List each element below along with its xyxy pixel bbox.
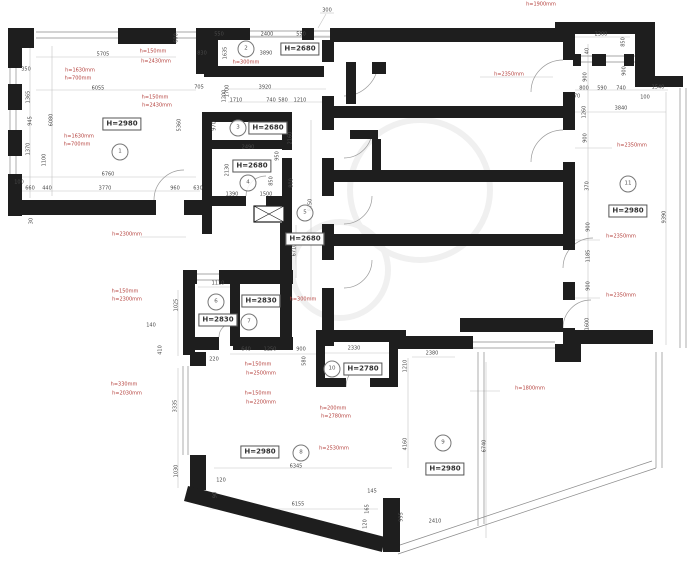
dimension-label: 830 (197, 51, 207, 57)
dimension-label: 550 (214, 32, 224, 38)
dimension-label: 2330 (348, 346, 361, 352)
room-number-badge: 10 (324, 361, 341, 378)
dimension-label: 2300 (595, 32, 608, 38)
dimension-label: 1185 (586, 250, 592, 263)
dimension-label: 165 (365, 504, 371, 514)
height-annotation: h=330mm (111, 382, 138, 388)
height-annotation: h=300mm (233, 60, 260, 66)
dimension-label: 900 (586, 281, 592, 291)
dimension-label: 1700 (225, 85, 231, 98)
dimension-label: 1390 (226, 192, 239, 198)
dimension-label: 660 (25, 186, 35, 192)
height-annotation: h=200mm (320, 406, 347, 412)
dimension-label: 370 (585, 181, 591, 191)
dimension-label: 900 (583, 133, 589, 143)
dimension-label: 900 (622, 66, 628, 76)
dimension-label: 1110 (212, 281, 225, 287)
dimension-label: 740 (266, 98, 276, 104)
height-annotation: h=1800mm (515, 386, 545, 392)
height-annotation: h=150mm (245, 362, 272, 368)
height-annotation: h=1630mm (64, 134, 94, 140)
dimension-label: 945 (28, 116, 34, 126)
room-height-label: H=2680 (280, 43, 319, 56)
dimension-label: 300 (322, 8, 332, 14)
dimension-label: 30 (29, 218, 35, 224)
height-annotation: h=1630mm (65, 68, 95, 74)
height-annotation: h=150mm (112, 289, 139, 295)
dimension-label: 590 (597, 86, 607, 92)
height-annotation: h=150mm (245, 391, 272, 397)
dimension-label: 2160 (288, 132, 294, 145)
room-height-label: H=2830 (198, 314, 237, 327)
dimension-label: 3770 (99, 186, 112, 192)
dimension-label: 1210 (294, 98, 307, 104)
dimension-label: 3920 (259, 85, 272, 91)
dimension-label: 705 (194, 85, 204, 91)
dimension-label: 995 (399, 512, 405, 522)
room-number-badge: 5 (297, 205, 314, 222)
room-number-badge: 7 (241, 314, 258, 331)
dimension-label: 120 (363, 519, 369, 529)
height-annotation: h=1900mm (526, 2, 556, 8)
floor-plan-canvas: 5705605535013659456080137011001006604406… (0, 0, 700, 571)
dimension-label: 1600 (585, 318, 591, 331)
dimension-label: 580 (278, 98, 288, 104)
room-number-badge: 8 (293, 445, 310, 462)
dimension-label: 1500 (260, 192, 273, 198)
dimension-label: 1370 (26, 143, 32, 156)
room-number-badge: 1 (112, 144, 129, 161)
dimension-label: 1635 (223, 47, 229, 60)
dimension-label: 1540 (652, 85, 665, 91)
height-annotation: h=150mm (140, 49, 167, 55)
dimension-label: 1710 (230, 98, 243, 104)
height-annotation: h=2350mm (606, 234, 636, 240)
height-annotation: h=2430mm (141, 59, 171, 65)
height-annotation: h=2300mm (112, 232, 142, 238)
dimension-label: 2490 (242, 145, 255, 151)
dimension-label: 550 (296, 32, 306, 38)
dimension-label: 6710 (292, 244, 298, 257)
room-number-badge: 9 (435, 435, 452, 452)
dimension-label: 3335 (173, 400, 179, 413)
room-height-label: H=2680 (248, 122, 287, 135)
dimension-label: 800 (289, 178, 295, 188)
dimension-label: 6760 (102, 172, 115, 178)
dimension-label: 970 (212, 121, 218, 131)
dimension-label: 740 (616, 86, 626, 92)
room-number-badge: 11 (620, 176, 637, 193)
dimension-label: 900 (583, 72, 589, 82)
dimension-label: 950 (275, 151, 281, 161)
dimension-label: 1250 (264, 347, 277, 353)
dimension-label: 960 (170, 186, 180, 192)
dimension-label: 1210 (403, 360, 409, 373)
dimension-label: 410 (158, 345, 164, 355)
height-annotation: h=2430mm (142, 103, 172, 109)
label-layer: 5705605535013659456080137011001006604406… (0, 0, 700, 571)
dimension-label: 5360 (177, 119, 183, 132)
height-annotation: h=2530mm (319, 446, 349, 452)
dimension-label: 800 (579, 86, 589, 92)
room-height-label: H=2980 (240, 446, 279, 459)
dimension-label: 90 (213, 492, 219, 498)
room-height-label: H=2980 (102, 118, 141, 131)
room-height-label: H=2980 (425, 463, 464, 476)
dimension-label: 2130 (225, 164, 231, 177)
height-annotation: h=2350mm (617, 143, 647, 149)
room-number-badge: 3 (230, 120, 247, 137)
dimension-label: 6740 (482, 440, 488, 453)
height-annotation: h=2350mm (606, 293, 636, 299)
room-height-label: H=2830 (241, 295, 280, 308)
dimension-label: 640 (241, 347, 251, 353)
room-number-badge: 2 (238, 41, 255, 58)
dimension-label: 220 (209, 357, 219, 363)
dimension-label: 850 (269, 176, 275, 186)
room-number-badge: 4 (240, 175, 257, 192)
dimension-label: 600 (174, 33, 180, 43)
dimension-label: 6345 (290, 464, 303, 470)
dimension-label: 1260 (582, 106, 588, 119)
dimension-label: 40 (585, 48, 591, 54)
room-number-badge: 6 (208, 294, 225, 311)
height-annotation: h=2500mm (246, 371, 276, 377)
dimension-label: 3840 (615, 106, 628, 112)
height-annotation: h=300mm (290, 297, 317, 303)
dimension-label: 2400 (261, 32, 274, 38)
dimension-label: 350 (21, 67, 31, 73)
dimension-label: 630 (193, 186, 203, 192)
height-annotation: h=2030mm (112, 391, 142, 397)
dimension-label: 4160 (403, 438, 409, 451)
height-annotation: h=2300mm (112, 297, 142, 303)
room-height-label: H=2980 (608, 205, 647, 218)
dimension-label: 9390 (662, 211, 668, 224)
dimension-label: 2410 (429, 519, 442, 525)
dimension-label: 580 (302, 356, 308, 366)
height-annotation: h=150mm (142, 95, 169, 101)
dimension-label: 6055 (92, 86, 105, 92)
dimension-label: 2380 (426, 351, 439, 357)
dimension-label: 100 (14, 180, 24, 186)
dimension-label: 1025 (174, 299, 180, 312)
height-annotation: h=700mm (64, 142, 91, 148)
dimension-label: 145 (367, 489, 377, 495)
dimension-label: 850 (621, 37, 627, 47)
dimension-label: 6155 (292, 502, 305, 508)
dimension-label: 900 (296, 347, 306, 353)
room-height-label: H=2680 (232, 160, 271, 173)
room-height-label: H=2780 (343, 363, 382, 376)
dimension-label: 1100 (42, 154, 48, 167)
dimension-label: 70 (574, 94, 580, 100)
dimension-label: 120 (216, 478, 226, 484)
dimension-label: 1365 (26, 91, 32, 104)
dimension-label: 440 (42, 186, 52, 192)
dimension-label: 1030 (174, 465, 180, 478)
height-annotation: h=2200mm (246, 400, 276, 406)
height-annotation: h=2350mm (494, 72, 524, 78)
height-annotation: h=2780mm (321, 414, 351, 420)
dimension-label: 140 (146, 323, 156, 329)
dimension-label: 6080 (49, 114, 55, 127)
height-annotation: h=700mm (65, 76, 92, 82)
dimension-label: 900 (586, 222, 592, 232)
room-height-label: H=2680 (285, 233, 324, 246)
dimension-label: 3890 (260, 51, 273, 57)
dimension-label: 5705 (97, 52, 110, 58)
dimension-label: 100 (640, 95, 650, 101)
